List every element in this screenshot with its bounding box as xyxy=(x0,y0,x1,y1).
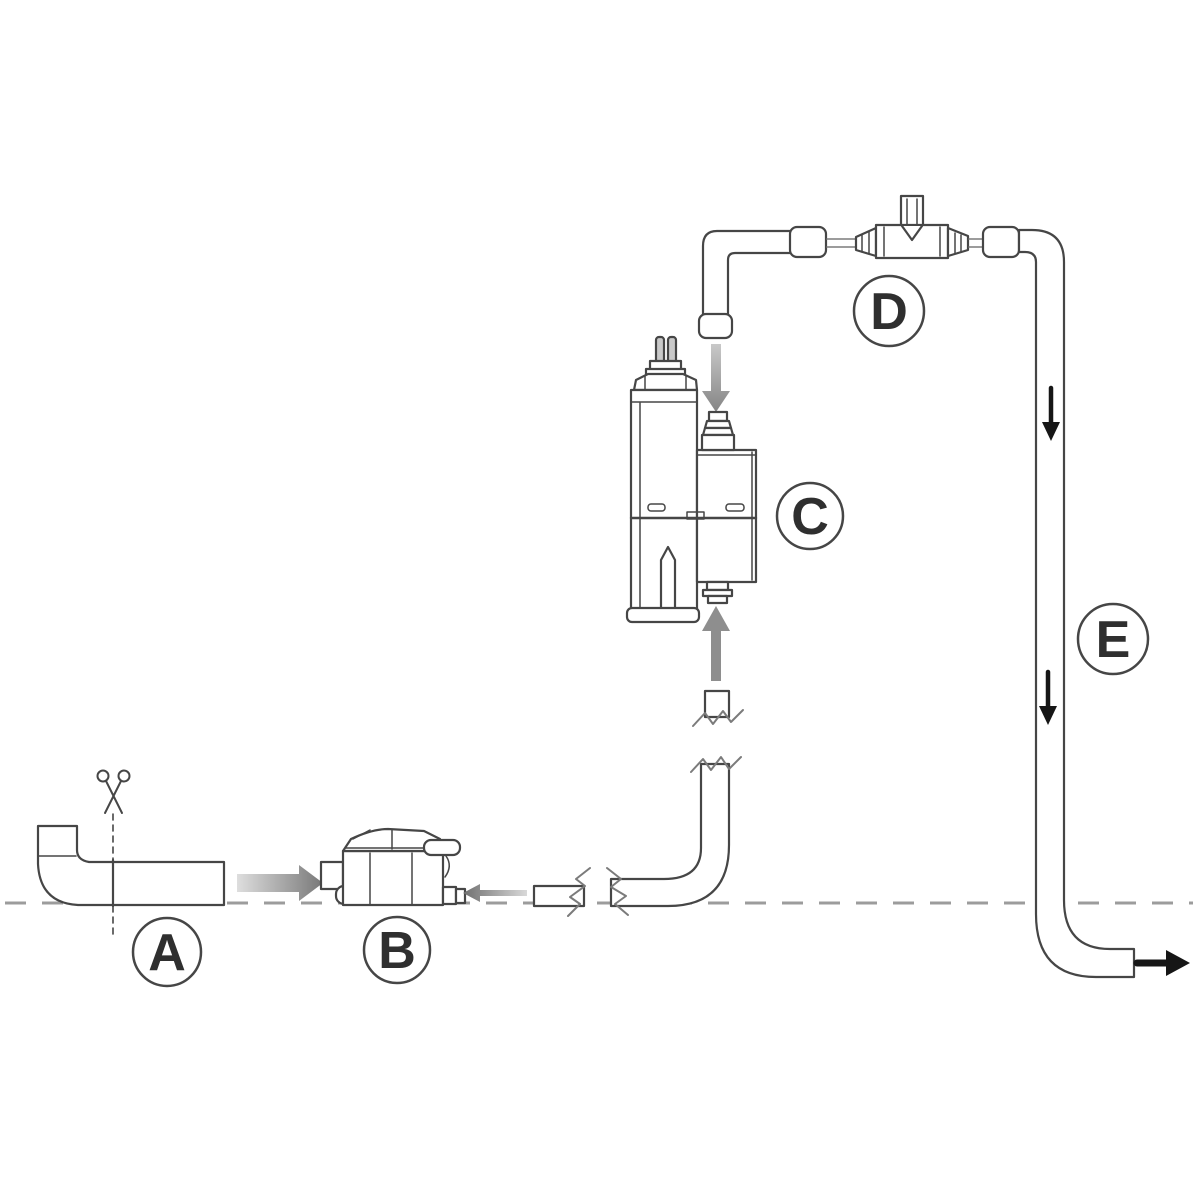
component-a-drain-pipe xyxy=(38,771,224,939)
installation-diagram: A B C D E xyxy=(0,0,1200,1200)
hose-top-left-elbow xyxy=(703,231,791,316)
valve-stem xyxy=(901,196,923,228)
trap-outlet-port xyxy=(443,887,456,904)
flow-arrow-a-to-b xyxy=(237,865,323,901)
pump-right-body xyxy=(697,450,756,582)
valve-right-barb xyxy=(948,228,968,256)
label-d-text: D xyxy=(870,283,908,341)
pump-outlet-barb xyxy=(702,412,734,450)
label-e-text: E xyxy=(1096,611,1131,669)
valve-nipple xyxy=(969,239,984,247)
component-d-check-valve xyxy=(856,196,984,258)
trap-outlet-stub xyxy=(456,889,465,903)
hose-run-b-to-c xyxy=(534,691,743,916)
hose-c-to-d xyxy=(699,227,856,338)
label-e: E xyxy=(1078,604,1148,674)
diagram-svg: A B C D E xyxy=(0,0,1200,1200)
hose-end-cap xyxy=(983,227,1019,257)
connect-arrow-up-into-c xyxy=(702,606,730,681)
flow-arrow-into-b xyxy=(463,884,527,902)
valve-nipple xyxy=(827,239,856,247)
component-e-discharge-pipe xyxy=(983,227,1134,977)
label-c: C xyxy=(777,483,843,549)
scissors-icon xyxy=(98,771,130,814)
label-b-text: B xyxy=(378,922,416,980)
trap-lid-tab xyxy=(424,840,460,855)
outlet-arrow-right-icon xyxy=(1137,950,1190,976)
pump-probe xyxy=(661,547,675,612)
label-a: A xyxy=(133,918,201,986)
pump-base xyxy=(627,608,699,622)
valve-left-barb xyxy=(856,228,876,256)
hose-segment xyxy=(534,886,584,906)
connect-arrow-down-into-c xyxy=(702,344,730,412)
hose-end-cap xyxy=(790,227,826,257)
hose-riser-elbow xyxy=(611,764,729,906)
pump-inlet-barb xyxy=(703,582,732,603)
component-b-trap-unit xyxy=(321,829,465,905)
label-b: B xyxy=(364,917,430,983)
trap-clip xyxy=(445,856,449,877)
trap-inlet-port xyxy=(321,862,343,889)
drain-pipe-elbow xyxy=(38,826,224,905)
power-cord-plug xyxy=(634,337,697,390)
line-art: A B C D E xyxy=(38,196,1190,986)
trap-body xyxy=(343,851,443,905)
component-c-pump xyxy=(627,337,756,622)
label-c-text: C xyxy=(791,488,829,546)
hose-end-cap xyxy=(699,314,732,338)
cable-gland xyxy=(634,374,697,390)
label-d: D xyxy=(854,276,924,346)
label-a-text: A xyxy=(148,924,186,982)
